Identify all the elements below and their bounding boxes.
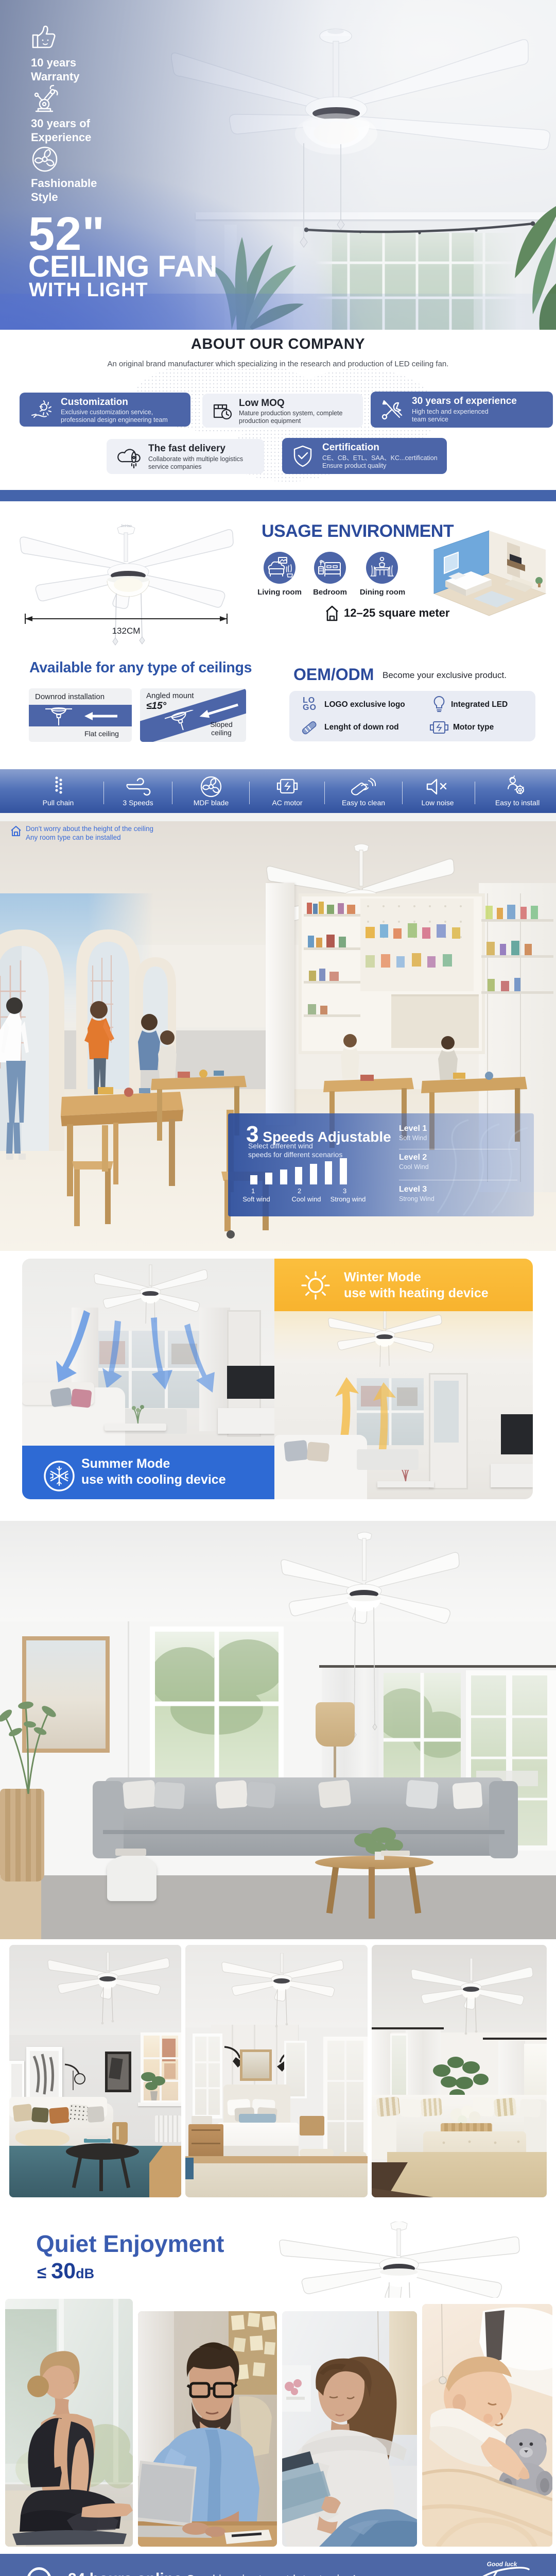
- svg-text:JinHao: JinHao: [120, 524, 132, 528]
- svg-text:Good luck: Good luck: [487, 2561, 518, 2568]
